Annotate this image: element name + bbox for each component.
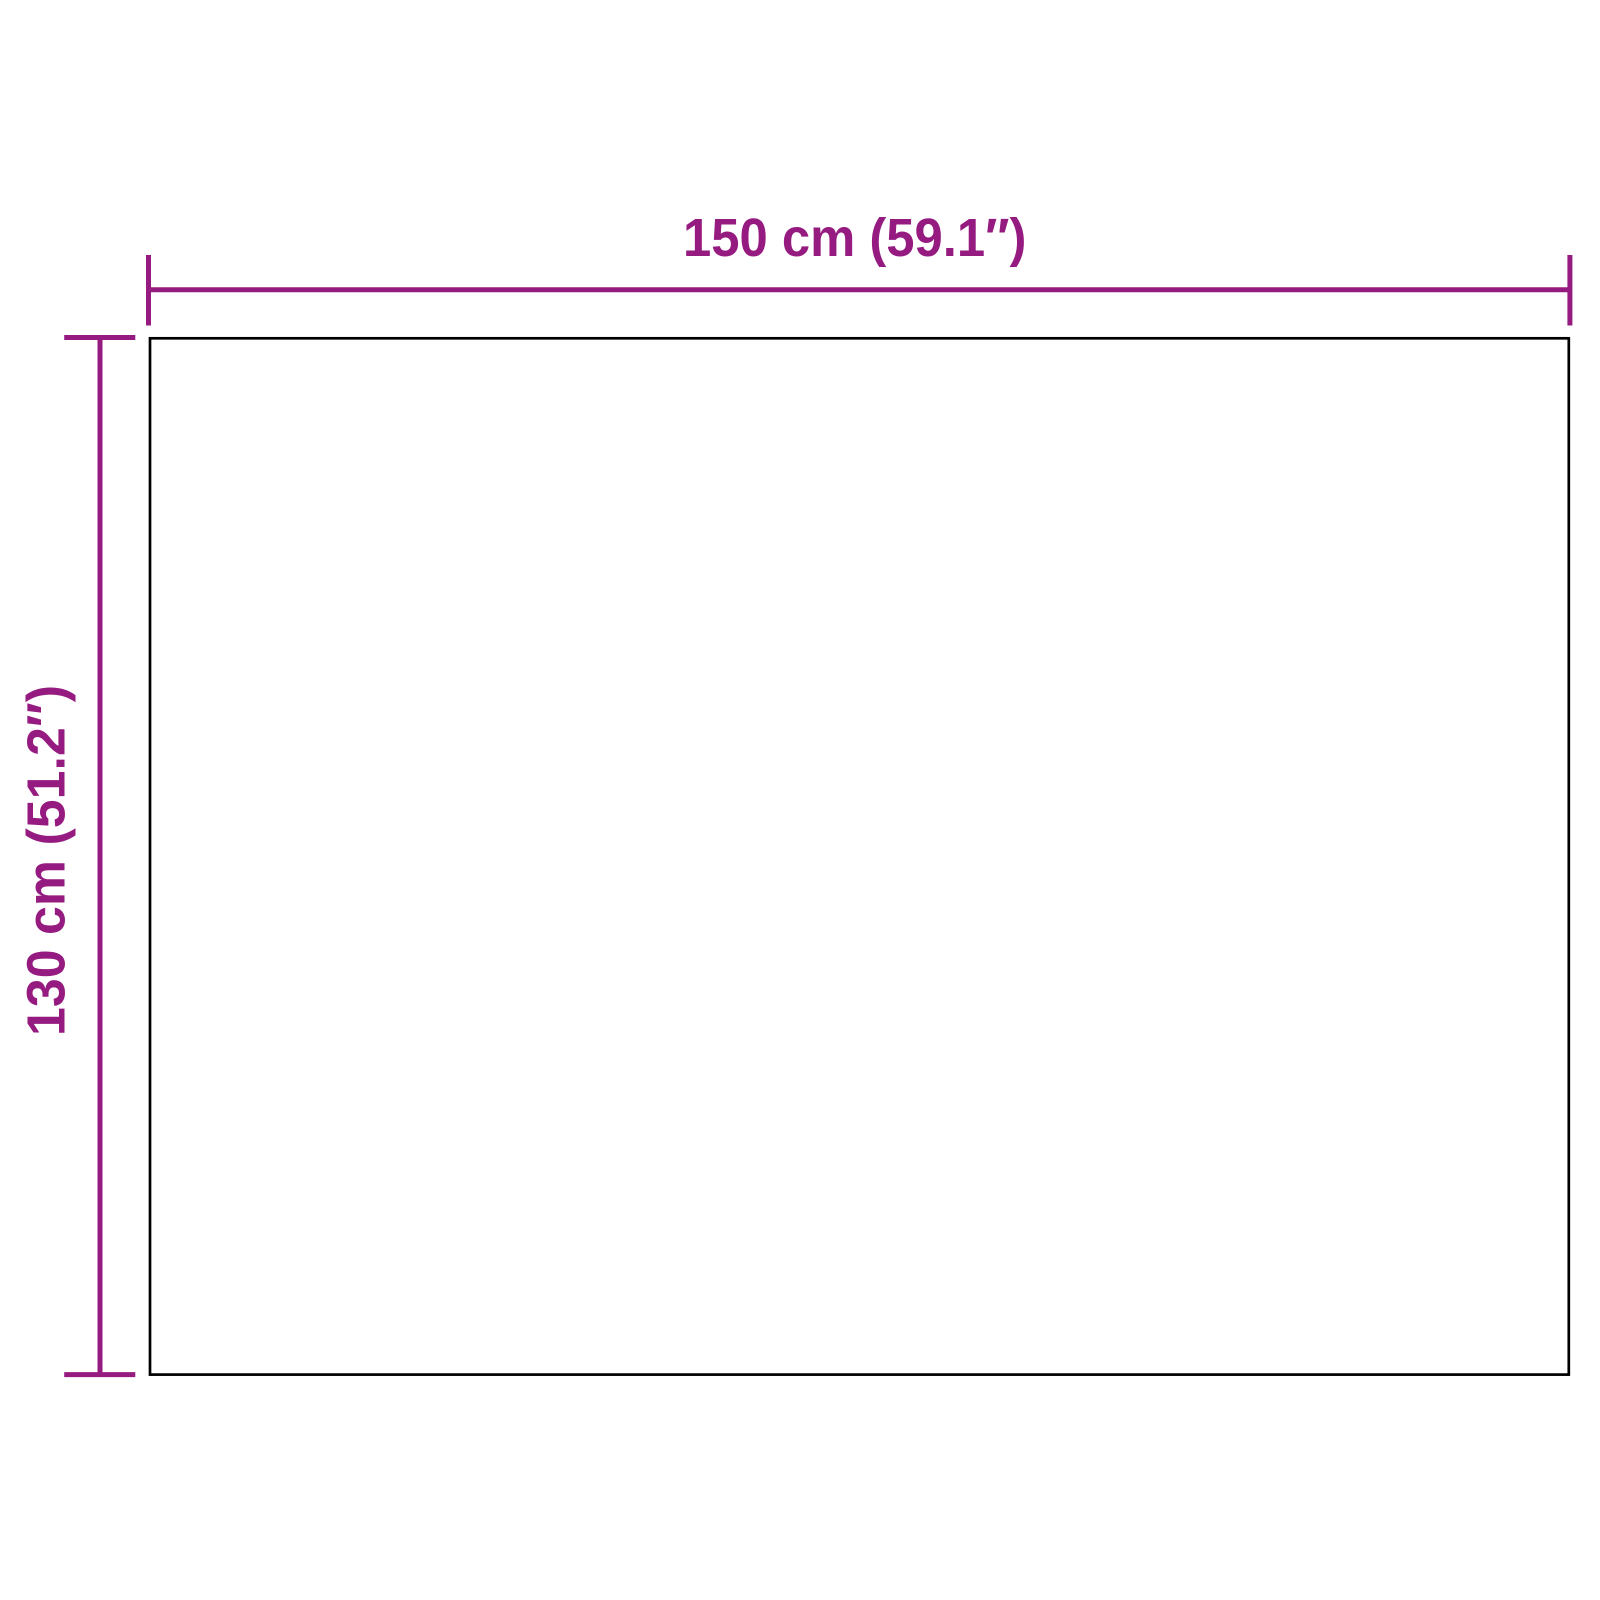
svg-text:130 cm (51.2″): 130 cm (51.2″) (17, 685, 76, 1036)
svg-text:150 cm (59.1″): 150 cm (59.1″) (683, 209, 1027, 268)
